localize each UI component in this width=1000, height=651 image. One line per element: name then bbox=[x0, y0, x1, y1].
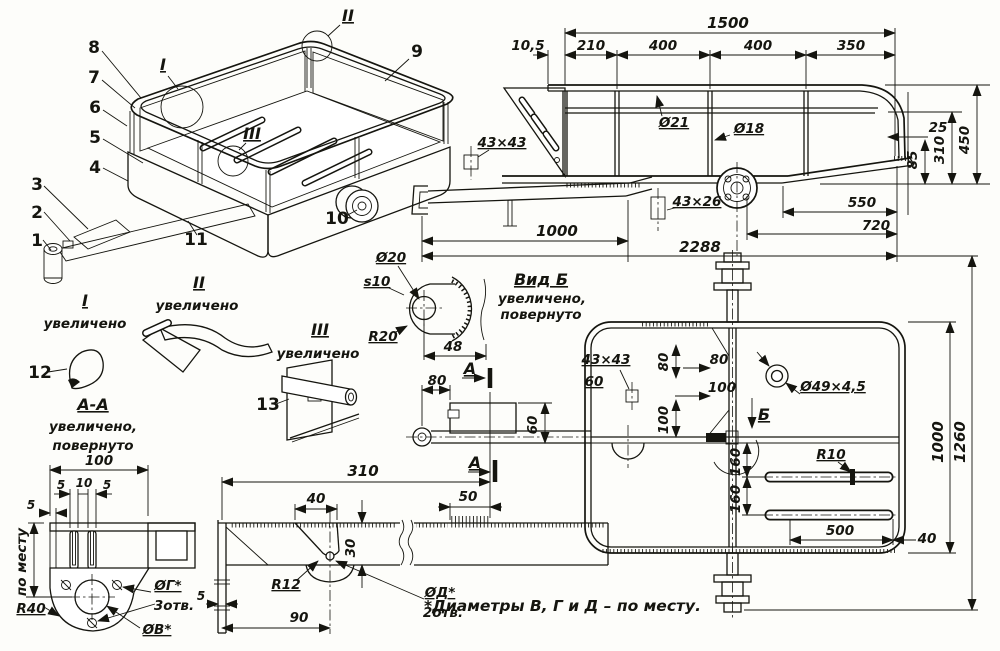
dim-r10: R10 bbox=[816, 447, 845, 463]
marker-II: II bbox=[342, 6, 354, 25]
aa-flange bbox=[50, 523, 195, 531]
front-gusset bbox=[504, 88, 565, 176]
side-tube-4326: 43×26 bbox=[672, 194, 722, 210]
dim-1000: 1000 bbox=[536, 222, 578, 240]
dia-21: Ø21 bbox=[658, 115, 689, 131]
bar-dim-40: 40 bbox=[306, 491, 326, 507]
dim-100v: 100 bbox=[656, 406, 672, 434]
view-b-title: Вид Б bbox=[514, 270, 568, 289]
bar-dim-50: 50 bbox=[459, 489, 478, 505]
dim-s10: s10 bbox=[364, 274, 391, 290]
view-b-note2: повернуто bbox=[500, 307, 581, 323]
bar-break-2 bbox=[408, 520, 413, 565]
part-ii-tube bbox=[146, 323, 168, 333]
detail-ii-note: увеличено bbox=[156, 298, 239, 314]
bar-dim-30: 30 bbox=[343, 539, 359, 558]
bar-r12: R12 bbox=[271, 577, 300, 593]
callout-3: 3 bbox=[31, 175, 43, 195]
callout-4: 4 bbox=[89, 158, 101, 178]
bar-dim-310: 310 bbox=[347, 462, 378, 480]
bar-dim-90: 90 bbox=[290, 610, 309, 626]
dim-160a: 160 bbox=[728, 448, 744, 476]
bed-floor bbox=[148, 91, 440, 207]
dim-85: 85 bbox=[905, 151, 921, 170]
detail-iii: III увеличено bbox=[277, 320, 360, 442]
section-aa-view: 100 5 10 5 5 по месту R40 ØГ* 3отв. ØВ* bbox=[14, 453, 195, 638]
dim-1260v: 1260 bbox=[951, 421, 969, 463]
detail-iii-note: увеличено bbox=[277, 346, 360, 362]
side-bottom-dim-lines bbox=[422, 166, 897, 262]
plan-weld-top bbox=[640, 322, 710, 327]
dim-d49: Ø49×4,5 bbox=[799, 379, 866, 395]
aa-dim-100: 100 bbox=[85, 453, 113, 469]
section-a-top: А bbox=[462, 359, 476, 378]
callout-10: 10 bbox=[325, 209, 349, 229]
dim-1000v: 1000 bbox=[929, 421, 947, 463]
tube-break-line bbox=[481, 279, 486, 340]
dim-80v: 80 bbox=[656, 353, 672, 372]
dim-500: 500 bbox=[826, 523, 854, 539]
callout-1: 1 bbox=[31, 231, 43, 251]
bar-break-1 bbox=[399, 520, 404, 565]
dim-d20: Ø20 bbox=[375, 250, 406, 266]
aa-finger-1 bbox=[70, 531, 78, 569]
plan-pad bbox=[450, 403, 516, 433]
dim-80h: 80 bbox=[710, 352, 729, 368]
dia-18: Ø18 bbox=[733, 121, 764, 137]
side-tube-4343: 43×43 bbox=[477, 135, 527, 151]
b-fitting bbox=[706, 433, 726, 442]
view-b-detail: Ø20 s10 R20 48 Вид Б увеличено, повернут… bbox=[364, 250, 586, 360]
bar-dim-5: 5 bbox=[197, 589, 205, 603]
dim-80-hitch: 80 bbox=[428, 373, 447, 389]
side-posts bbox=[563, 91, 808, 176]
bar-weld-dense bbox=[450, 516, 490, 523]
detail-ii-title: II bbox=[193, 273, 205, 292]
dim-10-5: 10,5 bbox=[511, 38, 544, 54]
callout-12: 12 bbox=[28, 363, 52, 383]
plan-view: Б Ø49×4,5 43×43 60 80 60 А 80 80 100 100 bbox=[406, 250, 978, 618]
perspective-view: I II III 1 2 3 4 5 6 7 8 9 10 11 12 13 bbox=[28, 6, 453, 415]
callout-13: 13 bbox=[256, 395, 280, 415]
dim-310: 310 bbox=[932, 136, 948, 164]
dim-2288: 2288 bbox=[679, 238, 721, 256]
prop-stand bbox=[503, 200, 517, 226]
marker-I: I bbox=[160, 55, 166, 74]
dim-450: 450 bbox=[957, 126, 973, 155]
gusset-slots bbox=[522, 100, 560, 163]
dim-25: 25 bbox=[929, 120, 948, 136]
footnote: *Диаметры В, Г и Д – по месту. bbox=[424, 597, 701, 615]
callout-11: 11 bbox=[184, 230, 208, 250]
axle-hub bbox=[717, 162, 757, 258]
aa-dim-10: 10 bbox=[76, 476, 93, 490]
dim-160b: 160 bbox=[728, 485, 744, 513]
part-13-rod bbox=[290, 414, 359, 438]
callout-6: 6 bbox=[89, 98, 101, 118]
bar-weld-1 bbox=[230, 523, 395, 528]
plan-drawbar bbox=[406, 428, 620, 446]
section-a-bottom: А bbox=[467, 453, 481, 472]
drawbar-beam bbox=[58, 204, 255, 261]
aa-dim-5a: 5 bbox=[57, 478, 65, 492]
dim-720: 720 bbox=[862, 218, 890, 234]
detail-i-note: увеличено bbox=[44, 316, 127, 332]
view-b-note1: увеличено, bbox=[498, 291, 586, 307]
tube-serration bbox=[452, 281, 470, 337]
detail-i-title: I bbox=[82, 291, 88, 310]
aa-finger-2 bbox=[88, 531, 96, 569]
part-ii-sheet bbox=[160, 325, 272, 357]
dim-210: 210 bbox=[577, 38, 605, 54]
aa-plate bbox=[50, 568, 149, 631]
dim-48: 48 bbox=[443, 339, 463, 355]
trailer-technical-drawing: I II III 1 2 3 4 5 6 7 8 9 10 11 12 13 bbox=[0, 0, 1000, 651]
hitch-eye bbox=[44, 244, 62, 284]
dim-r20: R20 bbox=[368, 329, 397, 345]
detail-circle-I bbox=[161, 86, 203, 128]
floor-rib-slots bbox=[762, 469, 896, 515]
aa-title: А-А bbox=[75, 395, 108, 414]
callout-2: 2 bbox=[31, 203, 43, 223]
callout-8: 8 bbox=[88, 38, 100, 58]
marker-b-arrow: Б bbox=[758, 405, 770, 424]
aa-note2: повернуто bbox=[52, 438, 133, 454]
drawing-sheet: I II III 1 2 3 4 5 6 7 8 9 10 11 12 13 bbox=[0, 0, 1000, 651]
detail-i: I увеличено bbox=[44, 291, 127, 389]
hitch-plate bbox=[410, 284, 455, 334]
aa-dgn: 3отв. bbox=[154, 598, 194, 614]
section-aa-title: А-А увеличено, повернуто bbox=[49, 395, 137, 454]
dim-350: 350 bbox=[837, 38, 865, 54]
hub-bottom bbox=[714, 553, 751, 612]
aa-r40: R40 bbox=[16, 601, 45, 617]
dim-400a: 400 bbox=[648, 38, 677, 54]
marker-III: III bbox=[243, 124, 261, 143]
part-12-tip bbox=[68, 378, 80, 388]
dim-100h: 100 bbox=[708, 380, 736, 396]
plan-weld-bottom bbox=[600, 549, 895, 553]
callout-7: 7 bbox=[88, 68, 100, 88]
dim-400b: 400 bbox=[743, 38, 772, 54]
rubber-pad bbox=[74, 220, 130, 249]
detail-ii: II увеличено bbox=[143, 273, 272, 372]
aa-dv: ØВ* bbox=[142, 622, 172, 638]
aa-note1: увеличено, bbox=[49, 419, 137, 435]
dim-550: 550 bbox=[848, 195, 876, 211]
rail-inner bbox=[548, 91, 899, 158]
dim-1500: 1500 bbox=[707, 14, 749, 32]
dim-40: 40 bbox=[917, 531, 937, 547]
dim-60v: 60 bbox=[525, 416, 541, 435]
rail-outer bbox=[548, 85, 905, 158]
aa-dg: ØГ* bbox=[153, 578, 181, 594]
aa-left-wall bbox=[50, 531, 56, 569]
plan-dim-60: 60 bbox=[585, 374, 604, 390]
callout-9: 9 bbox=[411, 42, 423, 62]
side-view: 43×43 43×26 Ø21 Ø18 1500 10,5 210 400 40… bbox=[412, 14, 990, 262]
aa-dim-5c: 5 bbox=[27, 498, 35, 512]
detail-iii-title: III bbox=[311, 320, 329, 339]
aa-fit-note: по месту bbox=[14, 527, 30, 596]
callout-5: 5 bbox=[89, 128, 101, 148]
plan-tube-4343: 43×43 bbox=[581, 352, 631, 368]
aa-dim-5b: 5 bbox=[103, 478, 111, 492]
aa-small-dims bbox=[40, 489, 112, 531]
